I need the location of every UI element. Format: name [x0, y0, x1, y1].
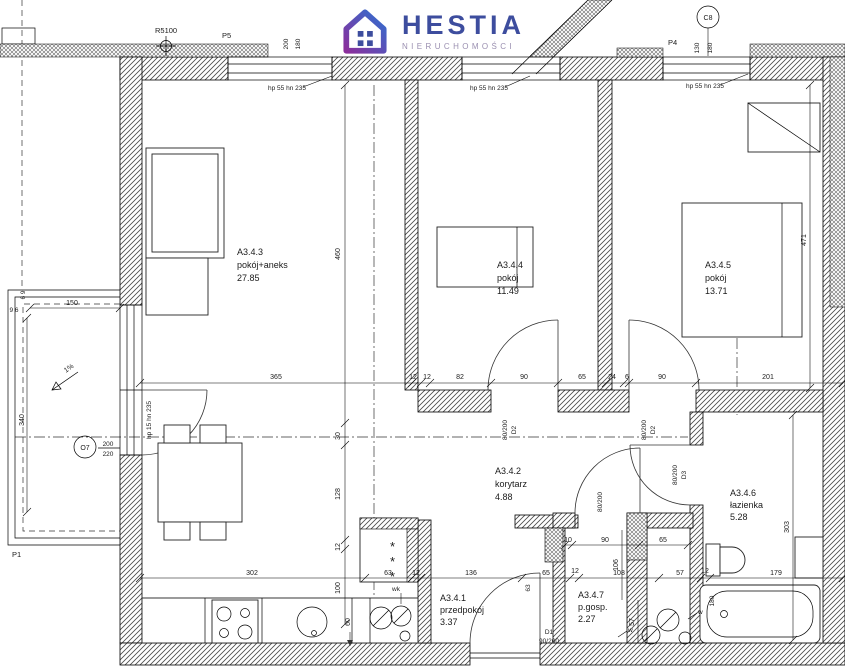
wardrobe-symbol: *	[390, 554, 395, 569]
balcony-door-width: 200	[103, 441, 114, 448]
dining-table	[158, 425, 242, 540]
room-name: pokój+aneks	[237, 260, 288, 270]
marker-o7-bubble: O7 200 220	[74, 436, 120, 458]
door-label: D3	[681, 470, 688, 479]
washing-machine-icon	[642, 609, 691, 644]
room-area: 11.49	[497, 286, 519, 296]
dim-label: 57	[629, 618, 636, 626]
dim-label: 90	[601, 537, 609, 544]
balcony-glazing	[120, 305, 142, 455]
room-name: pokój	[705, 273, 727, 283]
bed-room3	[682, 203, 802, 337]
kitchen-counter	[142, 598, 418, 643]
dim-label: 9 6	[9, 307, 18, 314]
dim-label: 12	[335, 543, 342, 551]
desk-room2	[437, 227, 533, 287]
door-label: D2	[650, 425, 657, 434]
dim-label: 136	[465, 570, 477, 577]
dim-label: 150	[66, 300, 78, 307]
dim-label: 30	[335, 432, 342, 440]
marker-c8-bubble: C8	[697, 6, 719, 28]
dim-label: 12	[423, 374, 431, 381]
dim-label: 106	[613, 559, 620, 571]
window-note: hp 55 hn 235	[470, 85, 508, 92]
room-area: 5.28	[730, 512, 748, 522]
dim-label: 90	[658, 374, 666, 381]
door-size: 80/200	[502, 420, 509, 440]
window-note: hp 55 hn 235	[686, 83, 724, 90]
marker-c8: C8	[704, 15, 713, 22]
floor-plan-drawing: 1%	[0, 0, 845, 672]
wardrobe-symbol: *	[390, 539, 395, 554]
furniture: * * *	[142, 103, 823, 644]
dim-label: 302	[246, 570, 258, 577]
dim-label: 180	[709, 595, 716, 606]
dim-label: 201	[762, 374, 774, 381]
room-id: A3.4.5	[705, 260, 731, 270]
room-label-a341: A3.4.1 przedpokój 3.37	[440, 593, 484, 627]
window-top-1	[228, 57, 332, 80]
dim-label: 200	[283, 38, 290, 49]
dim-label: 12	[571, 568, 579, 575]
room-name: p.gosp.	[578, 602, 608, 612]
dim-label: 460	[335, 248, 342, 260]
marker-r5100: R5100	[155, 26, 177, 35]
room-id: A3.4.3	[237, 247, 263, 257]
room-label-a343: A3.4.3 pokój+aneks 27.85	[237, 247, 288, 283]
room-name: pokój	[497, 273, 519, 283]
marker-p5: P5	[222, 31, 231, 40]
marker-o7: O7	[80, 445, 89, 452]
dim-label: 12	[701, 568, 709, 575]
room-label-a346: A3.4.6 łazienka 5.28	[730, 488, 763, 522]
room-id: A3.4.1	[440, 593, 466, 603]
room-id: A3.4.4	[497, 260, 523, 270]
dim-label: 303	[784, 521, 791, 533]
dim-label: 63	[384, 570, 392, 577]
room-area: 13.71	[705, 286, 728, 296]
balcony-door-height: 220	[103, 451, 114, 458]
room-name: przedpokój	[440, 605, 484, 615]
dim-label: 10	[564, 537, 572, 544]
dim-label: 100	[335, 582, 342, 594]
toilet-icon	[706, 544, 745, 576]
room-area: 27.85	[237, 273, 260, 283]
room-area: 2.27	[578, 614, 596, 624]
door-size: 80/200	[641, 420, 648, 440]
dim-label: 365	[270, 374, 282, 381]
dim-label: 340	[19, 414, 26, 426]
marker-p1: P1	[12, 550, 21, 559]
dim-label: 180	[295, 38, 302, 49]
dim-label: 65	[659, 537, 667, 544]
dim-label: 12	[409, 374, 417, 381]
reference-axes	[2, 0, 737, 595]
room-name: korytarz	[495, 479, 528, 489]
marker-w: w	[697, 609, 703, 616]
dim-label: 65	[542, 570, 550, 577]
room-id: A3.4.7	[578, 590, 604, 600]
wardrobe-room3	[748, 103, 820, 152]
marker-wk: wk	[391, 586, 401, 593]
dim-label: 471	[801, 234, 808, 246]
window-top-3	[663, 57, 750, 80]
door-pgosp	[575, 448, 640, 513]
room-name: łazienka	[730, 500, 763, 510]
dim-label: 130	[694, 42, 701, 53]
dim-label: 63	[525, 584, 532, 592]
dim-label: 6	[625, 374, 629, 381]
window-top-2	[462, 57, 560, 80]
dim-label: 24	[608, 374, 616, 381]
room-label-a342: A3.4.2 korytarz 4.88	[495, 466, 528, 502]
floor-plan-page: HESTIA NIERUCHOMOŚCI	[0, 0, 845, 672]
room-area: 3.37	[440, 617, 458, 627]
bathroom-cabinet	[795, 537, 823, 578]
dim-label: 180	[707, 42, 714, 53]
room-label-a347: A3.4.7 p.gosp. 2.27	[578, 590, 608, 624]
room-id: A3.4.2	[495, 466, 521, 476]
bathtub-icon	[700, 585, 820, 643]
window-note: hp 55 hn 235	[268, 85, 306, 92]
door-size: 80/200	[597, 492, 604, 512]
sofa	[146, 148, 224, 315]
slope-label: 1%	[63, 363, 75, 375]
dim-label: 6 9	[20, 290, 27, 299]
dim-label: 82	[456, 374, 464, 381]
dim-label: 57	[676, 570, 684, 577]
dim-label: 128	[335, 488, 342, 500]
room-id: A3.4.6	[730, 488, 756, 498]
dim-label: 12	[412, 570, 420, 577]
door-label: D1	[545, 629, 554, 636]
balcony-window-note: hp 15 hn 235	[146, 401, 153, 439]
dim-label: 65	[578, 374, 586, 381]
door-size: 90/200	[539, 638, 559, 645]
marker-w: w	[627, 627, 633, 634]
door-size: 80/200	[672, 465, 679, 485]
dim-label: 60	[345, 618, 352, 626]
dim-label: 90	[520, 374, 528, 381]
hob-icon	[212, 600, 258, 643]
door-label: D2	[511, 425, 518, 434]
dim-label: 179	[770, 570, 782, 577]
marker-p4: P4	[668, 38, 677, 47]
room-area: 4.88	[495, 492, 513, 502]
